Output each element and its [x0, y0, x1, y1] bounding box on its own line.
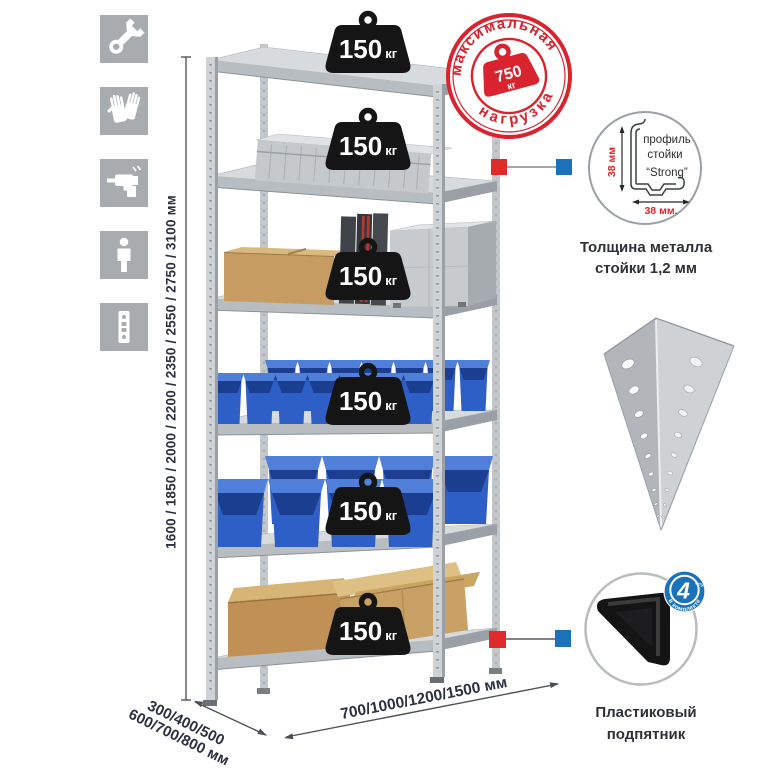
foot-caption-line2: подпятник	[607, 726, 686, 743]
rack-scene: максимальная нагрузка 750 кг 150кг 150кг…	[0, 0, 765, 765]
callout-marker-red-top	[491, 159, 507, 175]
upright-post-graphic	[604, 318, 734, 530]
max-load-stamp: максимальная нагрузка 750 кг	[434, 1, 583, 151]
callout-connector-bottom	[489, 630, 571, 648]
callout-marker-blue-bottom	[555, 630, 571, 647]
profile-detail-circle: 38 мм 38 мм. профиль стойки “Strong”	[589, 112, 701, 224]
svg-text:“Strong”: “Strong”	[646, 167, 688, 179]
weight-badge-1: 150кг	[326, 14, 411, 74]
callout-connector-top	[491, 159, 572, 175]
svg-text:38 мм: 38 мм	[606, 147, 618, 177]
height-dimension-label: 1600 / 1850 / 2000 / 2200 / 2350 / 2550 …	[164, 195, 179, 549]
svg-text:4: 4	[676, 578, 690, 604]
svg-text:профиль: профиль	[643, 134, 691, 146]
svg-text:38 мм.: 38 мм.	[644, 205, 677, 217]
callout-marker-blue-top	[556, 159, 572, 175]
shelving-infographic: максимальная нагрузка 750 кг 150кг 150кг…	[0, 0, 765, 765]
profile-caption-line2: стойки 1,2 мм	[595, 260, 697, 277]
foot-caption-line1: Пластиковый	[595, 704, 696, 721]
weight-badge-2: 150кг	[326, 111, 411, 171]
callout-marker-red-bottom	[489, 631, 506, 648]
height-dimension-line	[181, 57, 191, 700]
quantity-badge: 4 штуки в комплекте	[664, 571, 709, 613]
svg-text:стойки: стойки	[647, 149, 682, 161]
profile-caption-line1: Толщина металла	[580, 239, 712, 256]
